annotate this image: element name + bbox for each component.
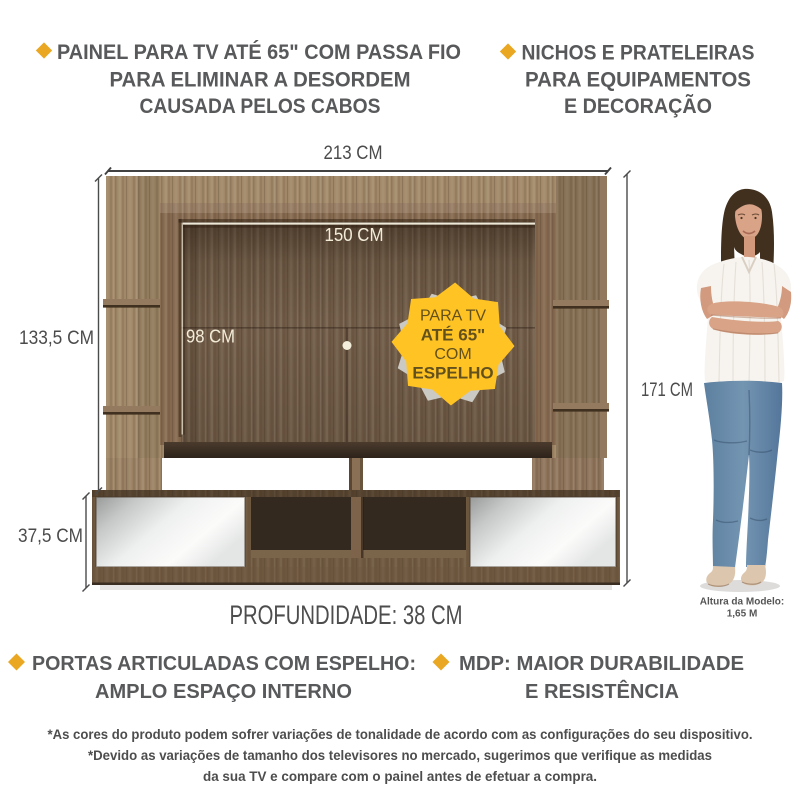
svg-text:133,5 CM: 133,5 CM xyxy=(19,328,94,349)
svg-text:NICHOS E PRATELEIRAS: NICHOS E PRATELEIRAS xyxy=(522,42,755,65)
svg-text:PROFUNDIDADE: 38 CM: PROFUNDIDADE: 38 CM xyxy=(230,600,463,630)
svg-text:ESPELHO: ESPELHO xyxy=(412,364,493,383)
svg-text:37,5 CM: 37,5 CM xyxy=(18,526,83,547)
svg-text:PARA EQUIPAMENTOS: PARA EQUIPAMENTOS xyxy=(525,69,751,92)
svg-text:171 CM: 171 CM xyxy=(641,380,693,401)
svg-text:Altura da Modelo:: Altura da Modelo: xyxy=(700,597,784,608)
svg-text:213 CM: 213 CM xyxy=(324,143,383,164)
svg-text:1,65 M: 1,65 M xyxy=(727,609,758,620)
svg-text:*Devido as variações de tamanh: *Devido as variações de tamanho dos tele… xyxy=(88,747,712,763)
svg-text:ATÉ 65": ATÉ 65" xyxy=(421,326,485,345)
svg-text:PORTAS ARTICULADAS COM ESPELHO: PORTAS ARTICULADAS COM ESPELHO: xyxy=(32,653,416,675)
svg-text:E RESISTÊNCIA: E RESISTÊNCIA xyxy=(525,679,679,703)
svg-text:E DECORAÇÃO: E DECORAÇÃO xyxy=(564,95,712,118)
svg-text:PAINEL PARA TV ATÉ 65" COM PAS: PAINEL PARA TV ATÉ 65" COM PASSA FIO xyxy=(57,41,461,64)
svg-text:da sua TV e compare com o pain: da sua TV e compare com o painel antes d… xyxy=(203,768,597,784)
svg-text:MDP: MAIOR DURABILIDADE: MDP: MAIOR DURABILIDADE xyxy=(459,653,744,675)
svg-text:PARA ELIMINAR A DESORDEM: PARA ELIMINAR A DESORDEM xyxy=(110,69,411,92)
svg-text:98 CM: 98 CM xyxy=(186,327,235,347)
svg-text:*As cores do produto podem sof: *As cores do produto podem sofrer variaç… xyxy=(48,726,753,742)
svg-text:150 CM: 150 CM xyxy=(325,225,384,245)
svg-text:CAUSADA PELOS CABOS: CAUSADA PELOS CABOS xyxy=(140,95,381,118)
svg-text:COM: COM xyxy=(434,346,471,363)
svg-text:AMPLO ESPAÇO INTERNO: AMPLO ESPAÇO INTERNO xyxy=(95,681,352,703)
svg-text:PARA TV: PARA TV xyxy=(420,308,486,325)
